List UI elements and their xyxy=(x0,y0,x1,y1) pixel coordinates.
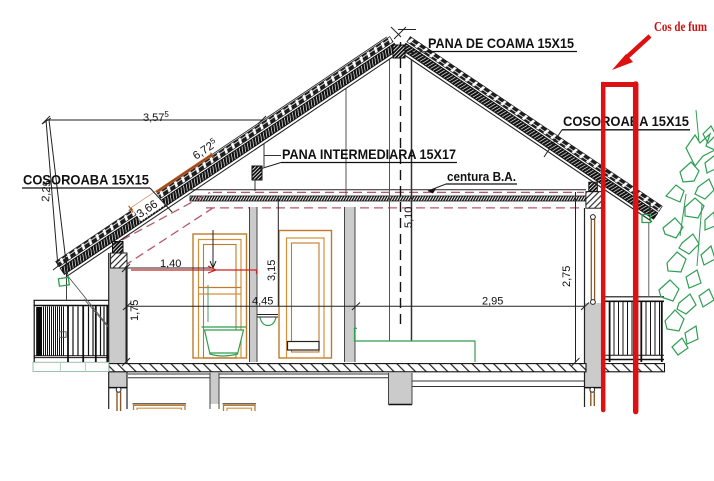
svg-text:1,40: 1,40 xyxy=(160,258,181,270)
svg-text:PANA DE COAMA 15X15: PANA DE COAMA 15X15 xyxy=(428,35,574,51)
svg-text:2,95: 2,95 xyxy=(482,296,503,308)
svg-text:COSOROABA 15X15: COSOROABA 15X15 xyxy=(23,172,149,188)
svg-text:centura B.A.: centura B.A. xyxy=(447,169,516,184)
svg-text:2,75: 2,75 xyxy=(561,266,573,287)
svg-text:PANA INTERMEDIARA 15X17: PANA INTERMEDIARA 15X17 xyxy=(282,146,456,162)
svg-text:5,10: 5,10 xyxy=(403,207,415,228)
svg-text:3,15: 3,15 xyxy=(266,260,278,281)
svg-text:4,45: 4,45 xyxy=(252,296,273,308)
svg-text:COSOROABA 15X15: COSOROABA 15X15 xyxy=(563,113,689,129)
svg-text:1,75: 1,75 xyxy=(129,300,141,321)
svg-text:Cos de fum: Cos de fum xyxy=(654,20,707,35)
